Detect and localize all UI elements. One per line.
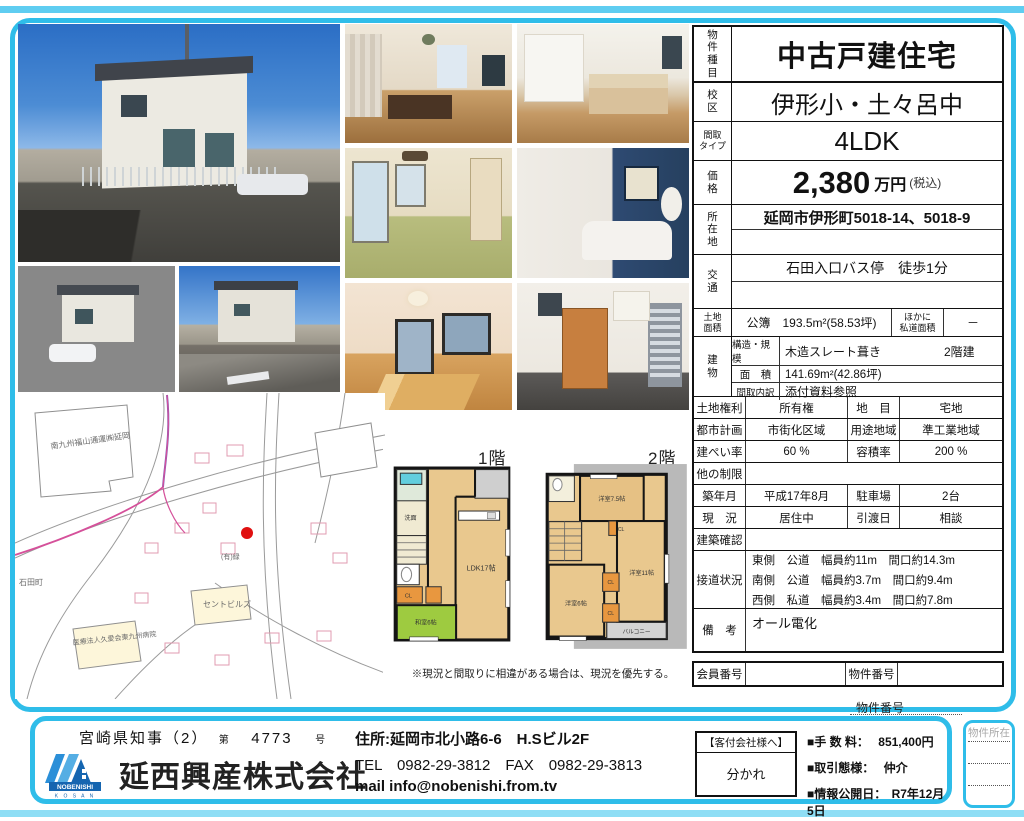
row-label: 土地 面積 [694, 309, 732, 336]
table-row-city-plan: 都市計画 市街化区域 用途地域 準工業地域 [694, 419, 1002, 441]
dining-table-shape [388, 95, 451, 119]
photo-exterior-main [18, 24, 340, 262]
car-shape [237, 174, 308, 195]
member-value [746, 663, 846, 685]
table-row-road: 接道状況 東側 公道 幅員約11m 間口約14.3m 南側 公道 幅員約3.7m… [694, 551, 1002, 609]
row-label: 建ぺい率 [694, 441, 746, 462]
yoseki-value: 200 % [900, 441, 1002, 462]
bathtub-shape [582, 221, 671, 260]
license-dai: 第 [219, 735, 229, 746]
row-label: 交 通 [694, 255, 732, 308]
land-right-value: 所有権 [746, 397, 848, 418]
room-label-tatami: 和室6帖 [415, 619, 437, 627]
torihiki-label: ■取引態様： [807, 761, 874, 775]
table-row-access: 交 通 石田入口バス停 徒歩1分 [694, 255, 1002, 309]
room-label-75: 洋室7.5帖 [598, 495, 625, 503]
car-shape [49, 344, 96, 362]
company-tel-fax: TEL 0982-29-3812 FAX 0982-29-3813 [355, 754, 642, 775]
license-pref: 宮崎県知事（2） [79, 730, 208, 747]
table-row-built: 築年月 平成17年8月 駐車場 2台 [694, 485, 1002, 507]
yoto-label: 用途地域 [848, 419, 900, 440]
curtain-shape [345, 34, 382, 117]
row-label: 土地権利 [694, 397, 746, 418]
row-label: 接道状況 [694, 551, 746, 608]
land-area-value: 公簿 193.5m²(58.53坪) [732, 309, 892, 336]
yoto-value: 準工業地域 [900, 419, 1002, 440]
closet-door-shape [470, 158, 502, 241]
row-label: 備 考 [694, 609, 746, 651]
ceiling-light-shape [402, 151, 429, 161]
address-value: 延岡市伊形町5018-14、5018-9 [732, 205, 1002, 230]
member-number-table: 会員番号 物件番号 [692, 661, 1004, 687]
location-dotline [968, 785, 1010, 786]
table-row-price: 価 格 2,380 万円 (税込) [694, 161, 1002, 205]
room-label-11: 洋室11帖 [629, 569, 654, 577]
cupboard-shape [524, 34, 584, 103]
top-accent-band [0, 6, 1024, 13]
table-row-type: 物 件 種 目 中古戸建住宅 [694, 27, 1002, 83]
land-other-label: ほかに 私道面積 [892, 309, 944, 336]
company-mail: mail info@nobenishi.from.tv [355, 778, 557, 795]
roof-shape [214, 281, 298, 290]
table-row-member: 会員番号 物件番号 [694, 663, 1002, 685]
photo-kitchen [517, 24, 689, 143]
location-dotline [968, 741, 1010, 742]
torihiki-value: 仲介 [884, 761, 908, 775]
location-dotline [968, 763, 1010, 764]
bukken-location-label: 物件所在 [966, 725, 1012, 740]
company-address: 住所:延岡市北小路6-6 H.Sビル2F [355, 728, 589, 749]
photo-western-room [345, 283, 512, 410]
room-label-cl2: CL [608, 580, 615, 586]
yoseki-label: 容積率 [848, 441, 900, 462]
chimoku-label: 地 目 [848, 397, 900, 418]
window-shape [163, 129, 195, 167]
access-value-2 [732, 282, 1002, 308]
room-label-washroom: 洗面 [404, 514, 416, 522]
kyakutsuke-box: 【客付会社様へ】 分かれ [695, 731, 797, 797]
structure-label: 構造・規模 [732, 337, 780, 365]
row-label: 物 件 種 目 [694, 27, 732, 81]
address-value-2 [732, 230, 1002, 254]
table-row-land-right: 土地権利 所有権 地 目 宅地 [694, 397, 1002, 419]
bukken-value [898, 663, 1002, 685]
shadow-shape [18, 210, 211, 262]
floorplan-1f: 洗面 CL 和室6帖 LDK17帖 [393, 466, 511, 642]
license-line: 宮崎県知事（2） 第 4773 号 [79, 727, 325, 748]
window-shape [624, 166, 659, 201]
photo-bathroom [517, 148, 689, 278]
fee-value: 851,400円 [878, 735, 933, 749]
window-shape [121, 95, 147, 116]
window-shape [75, 309, 94, 324]
status-value: 居住中 [746, 507, 848, 528]
row-label: 校 区 [694, 83, 732, 121]
room-label-6: 洋室6帖 [565, 600, 587, 608]
mirror-shape [661, 187, 682, 221]
structure-value: 木造スレート葺き [780, 343, 944, 360]
road-lines: 東側 公道 幅員約11m 間口約14.3m 南側 公道 幅員約3.7m 間口約9… [746, 551, 1002, 608]
land-other-value: － [944, 309, 1002, 336]
door-glass-grid-shape [650, 308, 679, 377]
price-tax-note: (税込) [909, 174, 941, 191]
house-shape [218, 289, 295, 342]
publish-label: ■情報公開日： [807, 787, 886, 801]
license-go: 号 [315, 735, 325, 746]
torihiki-line: ■取引態様： 仲介 [807, 759, 947, 776]
kenpei-value: 60 % [746, 441, 848, 462]
bukken-number-line [850, 701, 962, 715]
counter-shape [589, 74, 668, 88]
bukken-location-box: 物件所在 [963, 720, 1015, 808]
property-flyer-page: { "colors":{"accent_cyan":"#2fbde9","tat… [0, 0, 1024, 821]
fee-label: ■手 数 料： [807, 735, 869, 749]
photo-entrance [517, 283, 689, 410]
map-label: (有)緑 [221, 552, 240, 561]
footer-company-box: 宮崎県知事（2） 第 4773 号 NOBENISHI K O S A N 延西… [30, 716, 952, 804]
floorplan-2f: 洋室7.5帖 CL 洋室11帖 洋室6帖 CL CL バルコニー [545, 462, 689, 654]
room-label-ldk: LDK17帖 [467, 563, 496, 572]
fee-line: ■手 数 料： 851,400円 [807, 733, 947, 750]
price-amount: 2,380 [793, 165, 871, 201]
house-shape [62, 294, 134, 342]
company-name: 延西興産株式会社 [119, 752, 367, 796]
road-line-1: 東側 公道 幅員約11m 間口約14.3m [752, 552, 1002, 568]
access-value: 石田入口バス停 徒歩1分 [732, 255, 1002, 282]
kyakutsuke-value: 分かれ [697, 753, 795, 793]
chimoku-value: 宅地 [900, 397, 1002, 418]
company-logo: NOBENISHI K O S A N [41, 749, 115, 799]
city-plan-value: 市街化区域 [746, 419, 848, 440]
table-row-address: 所 在 地 延岡市伊形町5018-14、5018-9 [694, 205, 1002, 255]
window-shape [395, 164, 426, 207]
floorplan-note: ※現況と間取りに相違がある場合は、現況を優先する。 [388, 666, 698, 681]
member-label: 会員番号 [694, 663, 746, 685]
license-number: 4773 [251, 730, 292, 747]
kyakutsuke-title: 【客付会社様へ】 [697, 733, 795, 753]
room-label-closet: CL [405, 593, 412, 599]
window-shape [205, 133, 234, 166]
property-type-value: 中古戸建住宅 [732, 27, 1002, 81]
window-shape [234, 304, 250, 317]
map-label: セントビルズ [203, 599, 251, 609]
window-shape [395, 319, 434, 376]
window-shape [442, 313, 491, 355]
table-row-land-area: 土地 面積 公簿 193.5m²(58.53坪) ほかに 私道面積 － [694, 309, 1002, 337]
row-label: 建 物 [694, 337, 732, 396]
roof-shape [57, 285, 139, 295]
room-label-cl1: CL [618, 527, 625, 533]
deal-info-block: ■手 数 料： 851,400円 ■取引態様： 仲介 ■情報公開日： R7年12… [807, 733, 947, 819]
cabinet-shape [613, 291, 649, 321]
logo-text: NOBENISHI [57, 784, 93, 791]
property-table: 物 件 種 目 中古戸建住宅 校 区 伊形小・土々呂中 間取 タイプ 4LDK … [692, 25, 1004, 653]
ceiling-light-shape [408, 291, 428, 306]
table-row-kenchiku: 建築確認 [694, 529, 1002, 551]
photo-tatami-room [345, 148, 512, 278]
handover-value: 相談 [900, 507, 1002, 528]
island-shape [589, 88, 668, 114]
publish-line: ■情報公開日： R7年12月5日 [807, 785, 947, 819]
madori-value: 4LDK [732, 122, 1002, 160]
row-label: 都市計画 [694, 419, 746, 440]
window-shape [662, 36, 683, 69]
wood-partition-shape [562, 308, 609, 389]
table-row-biko: 備 考 オール電化 [694, 609, 1002, 651]
sunlight-floor-shape [370, 374, 479, 410]
photo-exterior-right [179, 266, 340, 392]
handover-label: 引渡日 [848, 507, 900, 528]
school-value: 伊形小・土々呂中 [732, 83, 1002, 121]
row-label: 価 格 [694, 161, 732, 204]
table-row-madori: 間取 タイプ 4LDK [694, 122, 1002, 161]
parking-label: 駐車場 [848, 485, 900, 506]
road-line-2: 南側 公道 幅員約3.7m 間口約9.4m [752, 572, 1002, 588]
row-label: 築年月 [694, 485, 746, 506]
row-label: 所 在 地 [694, 205, 732, 254]
price-unit: 万円 [874, 171, 906, 195]
window-shape [538, 293, 562, 316]
tv-shape [482, 55, 505, 86]
location-map: 南九州福山通運㈱延岡 石田町 セントビルズ 医療法人久愛会東九州病院 (有)緑 [15, 393, 385, 699]
room-label-cl3: CL [608, 611, 615, 617]
other-limit-value [746, 463, 1002, 484]
map-label: 石田町 [19, 578, 43, 587]
table-row-kenpei: 建ぺい率 60 % 容積率 200 % [694, 441, 1002, 463]
row-label: 建築確認 [694, 529, 746, 550]
area-value: 141.69m²(42.86坪) [780, 366, 1002, 382]
area-label: 面 積 [732, 366, 780, 382]
structure-subrow: 構造・規模 木造スレート葺き 2階建 [732, 337, 1002, 366]
table-row-other-limit: 他の制限 [694, 463, 1002, 485]
kenchiku-value [746, 529, 1002, 550]
built-value: 平成17年8月 [746, 485, 848, 506]
biko-value: オール電化 [746, 609, 1002, 651]
price-value-cell: 2,380 万円 (税込) [732, 161, 1002, 204]
bukken-label: 物件番号 [846, 663, 898, 685]
row-label: 現 況 [694, 507, 746, 528]
parking-value: 2台 [900, 485, 1002, 506]
window-shape [437, 45, 467, 88]
road-line-3: 西側 私道 幅員約3.4m 間口約7.8m [752, 592, 1002, 608]
photo-exterior-left [18, 266, 175, 392]
row-label: 間取 タイプ [694, 122, 732, 160]
logo-subtext: K O S A N [55, 794, 96, 800]
table-row-status: 現 況 居住中 引渡日 相談 [694, 507, 1002, 529]
area-subrow: 面 積 141.69m²(42.86坪) [732, 366, 1002, 383]
table-row-building: 建 物 構造・規模 木造スレート葺き 2階建 面 積 141.69m²(42.8… [694, 337, 1002, 397]
map-location-marker [241, 527, 253, 539]
row-label: 他の制限 [694, 463, 746, 484]
photo-living-dining [345, 24, 512, 143]
window-shape [352, 161, 389, 243]
pendant-light-shape [422, 34, 435, 46]
room-label-balcony: バルコニー [623, 628, 651, 635]
structure-floors: 2階建 [944, 343, 1002, 360]
table-row-school: 校 区 伊形小・土々呂中 [694, 83, 1002, 122]
